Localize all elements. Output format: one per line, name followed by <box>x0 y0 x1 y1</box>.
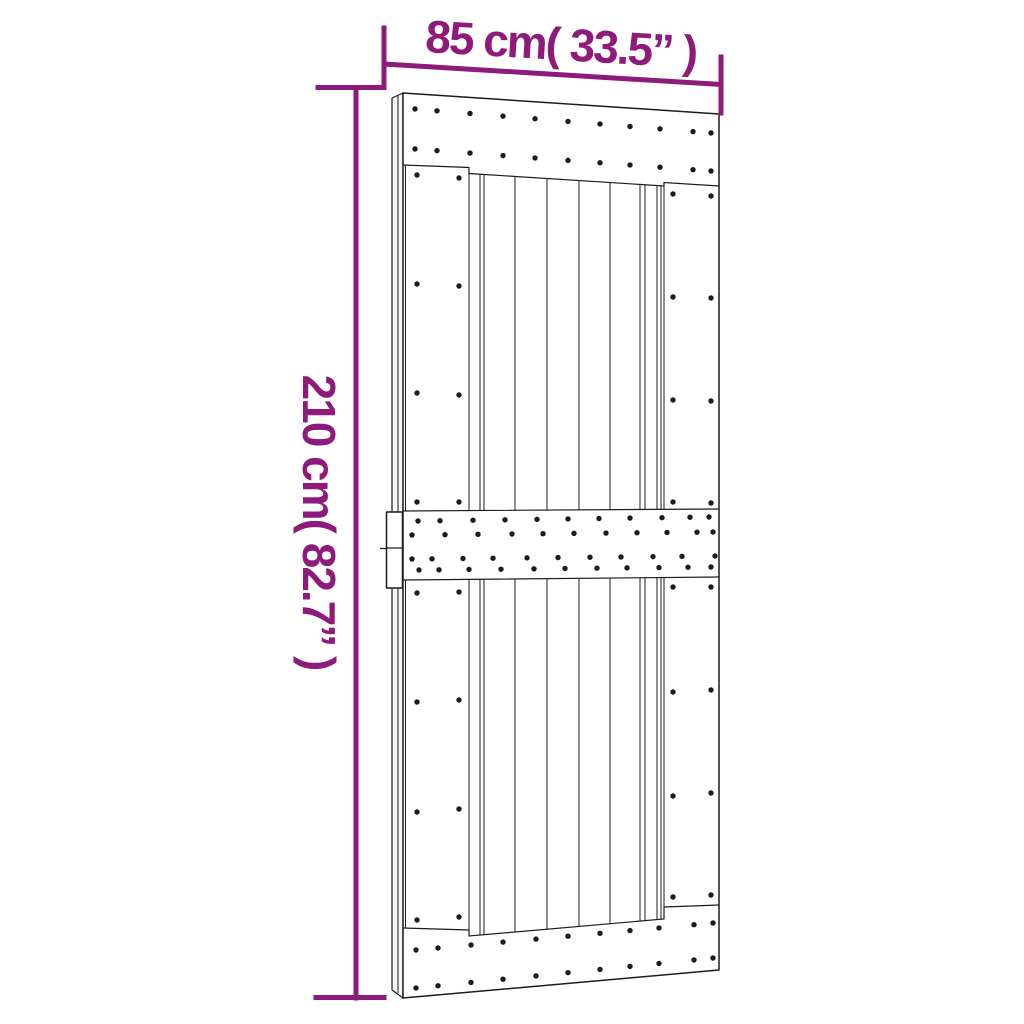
nail-dot <box>594 565 599 570</box>
nail-dot <box>414 590 419 595</box>
door-front-face <box>403 93 719 998</box>
nail-dot <box>670 191 675 196</box>
nail-dot <box>532 116 537 121</box>
nail-dot <box>409 532 414 537</box>
nail-dot <box>531 566 536 571</box>
nail-dot <box>687 515 692 520</box>
nail-dot <box>412 106 417 111</box>
nail-dot <box>555 555 560 560</box>
nail-dot <box>627 162 632 167</box>
nail-dot <box>429 556 434 561</box>
nail-dot <box>708 892 713 897</box>
nail-dot <box>532 155 537 160</box>
nail-dot <box>456 283 461 288</box>
nail-dot <box>467 111 472 116</box>
nail-dot <box>533 936 538 941</box>
nail-dot <box>565 158 570 163</box>
nail-dot <box>659 515 664 520</box>
nail-dot <box>587 555 592 560</box>
nail-dot <box>691 922 696 927</box>
nail-dot <box>435 983 440 988</box>
nail-dot <box>708 295 713 300</box>
nail-dot <box>670 294 675 299</box>
nail-dot <box>708 687 713 692</box>
nail-dot <box>691 957 696 962</box>
nail-dot <box>670 793 675 798</box>
nail-dot <box>690 129 695 134</box>
nail-dot <box>712 553 717 558</box>
nail-dot <box>708 130 713 135</box>
nail-dot <box>708 168 713 173</box>
nail-dot <box>597 160 602 165</box>
nail-dot <box>414 172 419 177</box>
nail-dot <box>442 532 447 537</box>
nail-dot <box>456 914 461 919</box>
nail-dot <box>571 531 576 536</box>
nail-dot <box>710 920 715 925</box>
nail-dot <box>436 567 441 572</box>
nail-dot <box>416 567 421 572</box>
nail-dot <box>670 894 675 899</box>
nail-dot <box>490 555 495 560</box>
nail-dot <box>414 917 419 922</box>
nail-dot <box>657 126 662 131</box>
nail-dot <box>656 565 661 570</box>
nail-dot <box>435 945 440 950</box>
height-dimension: 210 cm( 82.7” ) <box>293 88 384 999</box>
door-diagram-svg: 210 cm( 82.7” ) 85 cm( 33.5” ) <box>0 0 1024 1024</box>
nail-dot <box>565 516 570 521</box>
nail-dot <box>468 942 473 947</box>
nail-dot <box>412 146 417 151</box>
height-dimension-label: 210 cm( 82.7” ) <box>293 375 345 670</box>
nail-dot <box>618 554 623 559</box>
nail-dot <box>627 928 632 933</box>
nail-dot <box>500 113 505 118</box>
nail-dot <box>434 148 439 153</box>
nail-dot <box>708 790 713 795</box>
nail-dot <box>670 584 675 589</box>
nail-dot <box>706 514 711 519</box>
nail-dot <box>456 392 461 397</box>
nail-dot <box>597 967 602 972</box>
nail-dot <box>466 567 471 572</box>
nail-dot <box>670 397 675 402</box>
nail-dot <box>670 499 675 504</box>
nail-dot <box>657 165 662 170</box>
nail-dot <box>627 964 632 969</box>
handle-bar <box>387 512 403 588</box>
nail-dot <box>597 931 602 936</box>
nail-dot <box>624 565 629 570</box>
nail-dot <box>634 530 639 535</box>
nail-dot <box>708 193 713 198</box>
nail-dot <box>679 554 684 559</box>
nail-dot <box>650 554 655 559</box>
nail-dot <box>414 809 419 814</box>
nail-dot <box>413 985 418 990</box>
nail-dot <box>656 925 661 930</box>
nail-dot <box>414 390 419 395</box>
nail-dot <box>509 531 514 536</box>
nail-dot <box>533 973 538 978</box>
nail-dot <box>470 518 475 523</box>
product-dimension-diagram: 210 cm( 82.7” ) 85 cm( 33.5” ) <box>0 0 1024 1024</box>
nail-dot <box>456 589 461 594</box>
nail-dot <box>414 699 419 704</box>
nail-dot <box>627 124 632 129</box>
nail-dot <box>690 167 695 172</box>
nail-dot <box>565 933 570 938</box>
nail-dot <box>710 955 715 960</box>
nail-dot <box>670 689 675 694</box>
nail-dot <box>603 530 608 535</box>
nail-dot <box>565 119 570 124</box>
nail-dot <box>708 564 713 569</box>
nail-dot <box>710 529 715 534</box>
door-handle <box>381 512 403 588</box>
nail-dot <box>500 977 505 982</box>
nail-dot <box>708 398 713 403</box>
nail-dot <box>434 108 439 113</box>
nail-dot <box>685 565 690 570</box>
nail-dot <box>565 970 570 975</box>
nail-dot <box>409 556 414 561</box>
nail-dot <box>534 517 539 522</box>
nail-dot <box>708 584 713 589</box>
nail-dot <box>415 518 420 523</box>
nail-dot <box>627 515 632 520</box>
door <box>381 93 720 998</box>
nail-dot <box>456 175 461 180</box>
nail-dot <box>456 806 461 811</box>
nail-dot <box>664 530 669 535</box>
nail-dot <box>540 531 545 536</box>
nail-dot <box>467 150 472 155</box>
nail-dot <box>597 121 602 126</box>
nail-dot <box>596 516 601 521</box>
nail-dot <box>456 697 461 702</box>
nail-dot <box>437 518 442 523</box>
nail-dot <box>562 566 567 571</box>
nail-dot <box>694 529 699 534</box>
nail-dot <box>502 517 507 522</box>
nail-dot <box>500 153 505 158</box>
nail-dot <box>414 499 419 504</box>
nail-dot <box>500 939 505 944</box>
nail-dot <box>468 980 473 985</box>
nail-dot <box>413 947 418 952</box>
nail-dot <box>656 961 661 966</box>
nail-dot <box>414 281 419 286</box>
nail-dot <box>475 532 480 537</box>
nail-dot <box>708 500 713 505</box>
nail-dot <box>456 499 461 504</box>
nail-dot <box>524 555 529 560</box>
nail-dot <box>498 566 503 571</box>
nail-dot <box>460 556 465 561</box>
